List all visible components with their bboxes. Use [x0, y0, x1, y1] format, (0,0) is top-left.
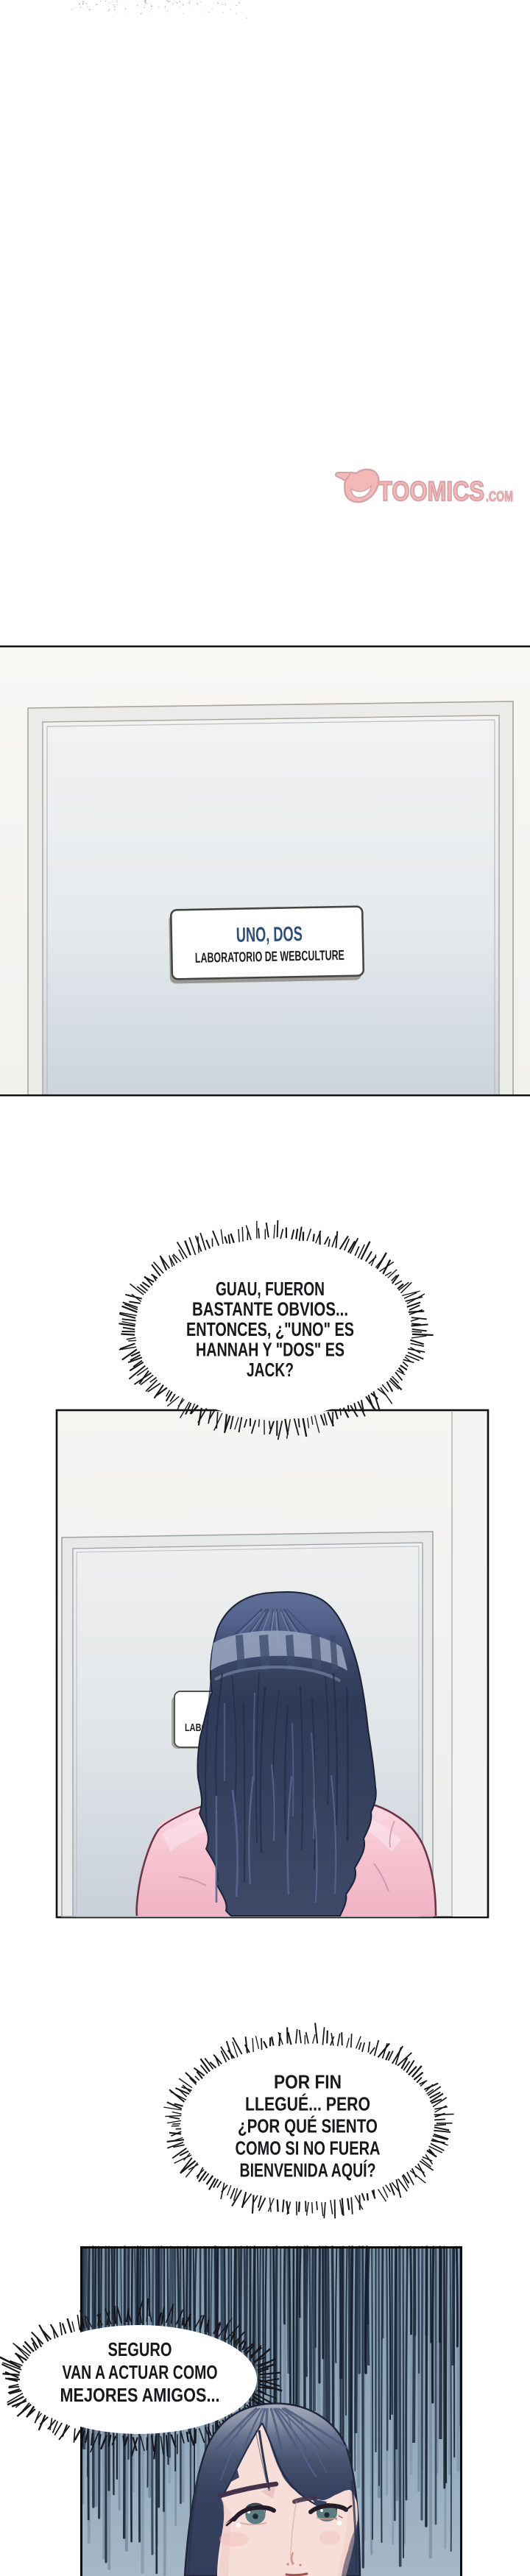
- svg-text:GUAU, FUERON: GUAU, FUERON: [216, 1278, 325, 1300]
- svg-text:LLEGUÉ... PERO: LLEGUÉ... PERO: [245, 2093, 370, 2115]
- svg-text:HANNAH Y "DOS" ES: HANNAH Y "DOS" ES: [196, 1339, 344, 1361]
- svg-text:ENTONCES, ¿"UNO" ES: ENTONCES, ¿"UNO" ES: [186, 1318, 354, 1340]
- svg-text:.COM: .COM: [486, 489, 513, 505]
- svg-text:VAN A ACTUAR COMO: VAN A ACTUAR COMO: [63, 2361, 218, 2383]
- svg-text:BASTANTE OBVIOS...: BASTANTE OBVIOS...: [192, 1298, 348, 1320]
- svg-text:POR FIN: POR FIN: [274, 2071, 342, 2093]
- svg-text:LABORATORIO DE WEBCULTURE: LABORATORIO DE WEBCULTURE: [195, 948, 344, 966]
- svg-text:¿POR QUÉ SIENTO: ¿POR QUÉ SIENTO: [238, 2115, 378, 2137]
- svg-text:MEJORES AMIGOS...: MEJORES AMIGOS...: [60, 2384, 220, 2406]
- svg-text:TOOMICS: TOOMICS: [378, 476, 484, 506]
- svg-text:JACK?: JACK?: [247, 1359, 294, 1381]
- svg-text:SEGURO: SEGURO: [108, 2338, 172, 2360]
- svg-text:BIENVENIDA AQUÍ?: BIENVENIDA AQUÍ?: [240, 2159, 376, 2182]
- svg-text:UNO, DOS: UNO, DOS: [236, 922, 303, 946]
- svg-text:COMO SI NO FUERA: COMO SI NO FUERA: [236, 2137, 381, 2159]
